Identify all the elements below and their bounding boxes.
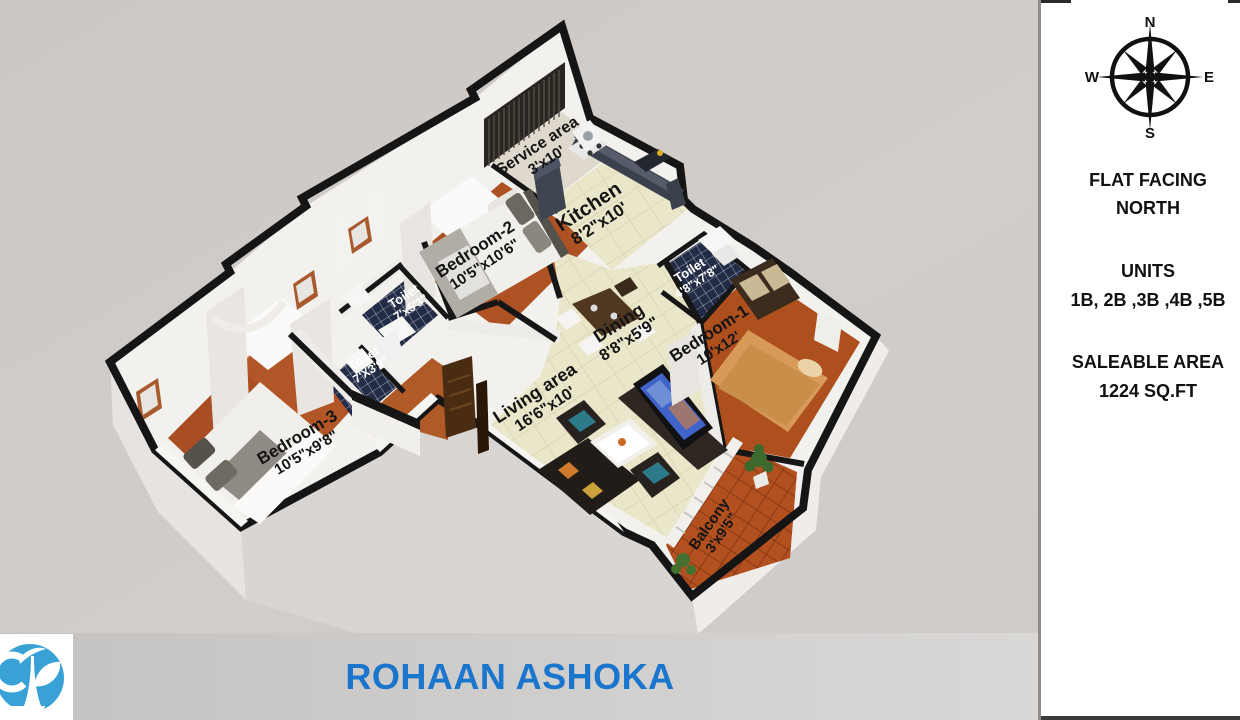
svg-text:S: S xyxy=(1145,125,1155,142)
svg-text:ROHAAN ASHOKA: ROHAAN ASHOKA xyxy=(345,656,674,697)
svg-text:E: E xyxy=(1204,69,1214,86)
svg-text:NORTH: NORTH xyxy=(1116,198,1180,218)
svg-text:N: N xyxy=(1145,14,1156,31)
svg-text:FLAT FACING: FLAT FACING xyxy=(1089,170,1207,190)
svg-text:UNITS: UNITS xyxy=(1121,261,1175,281)
svg-text:1224 SQ.FT: 1224 SQ.FT xyxy=(1099,381,1197,401)
svg-text:W: W xyxy=(1085,69,1100,86)
svg-text:1B, 2B ,3B ,4B ,5B: 1B, 2B ,3B ,4B ,5B xyxy=(1070,290,1225,310)
svg-text:SALEABLE AREA: SALEABLE AREA xyxy=(1072,352,1224,372)
